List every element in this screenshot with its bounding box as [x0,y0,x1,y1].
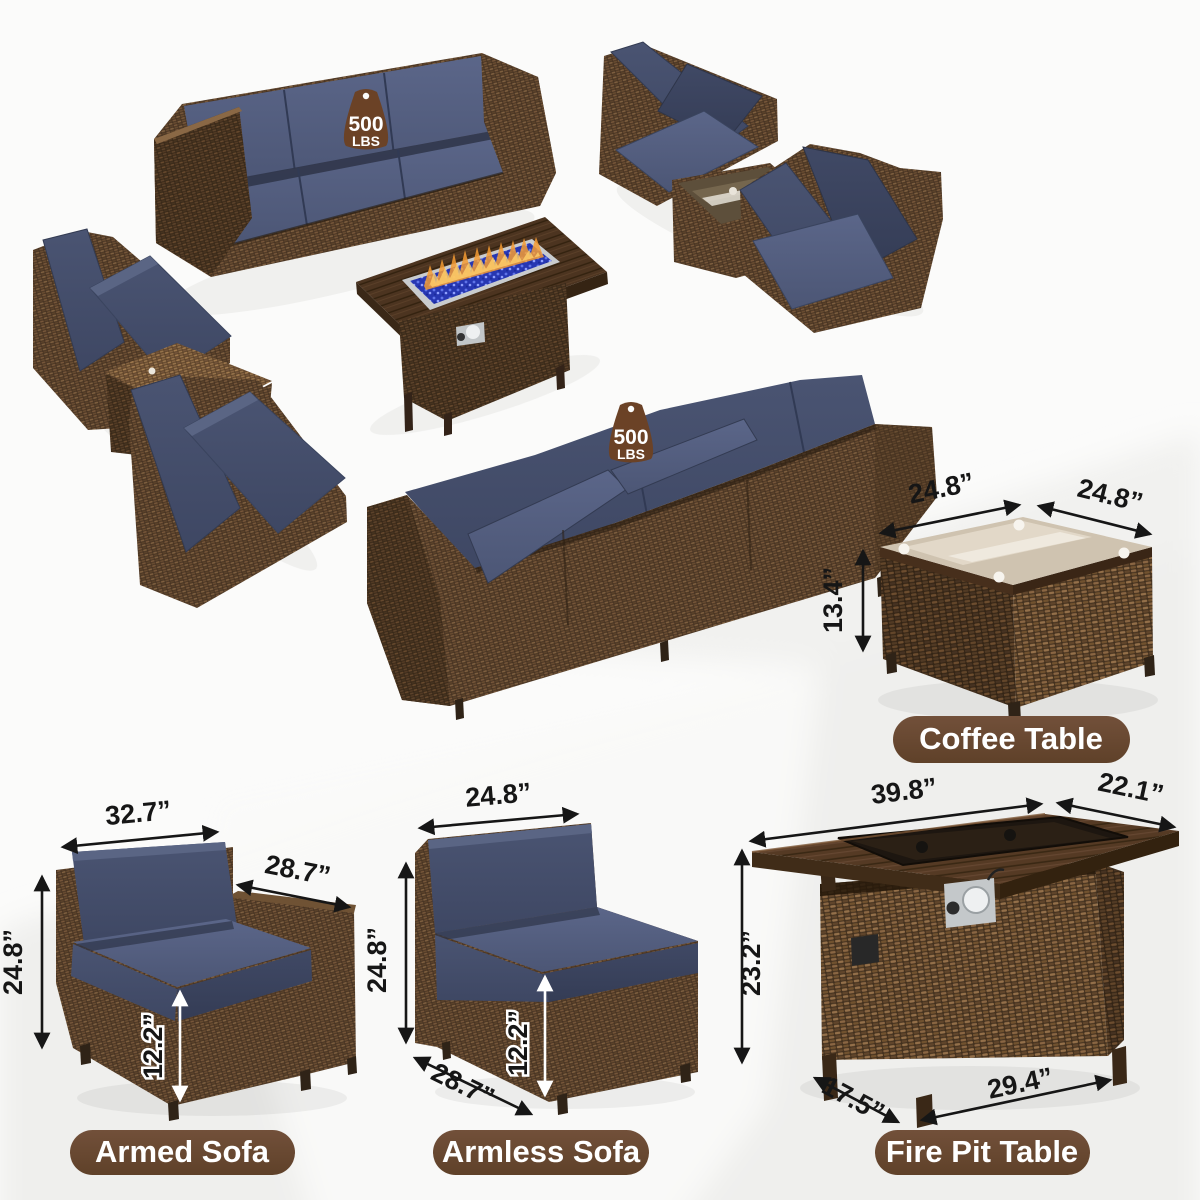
svg-text:Armed Sofa: Armed Sofa [95,1134,270,1169]
svg-text:24.8”: 24.8” [464,777,532,813]
svg-text:13.4”: 13.4” [818,567,848,633]
svg-text:LBS: LBS [352,133,380,149]
svg-text:23.2”: 23.2” [736,930,766,996]
svg-text:Coffee Table: Coffee Table [919,721,1103,756]
svg-text:12.2”: 12.2” [138,1013,168,1079]
svg-text:12.2”: 12.2” [503,1010,533,1076]
svg-text:Fire Pit Table: Fire Pit Table [886,1134,1078,1169]
svg-text:24.8”: 24.8” [362,927,392,993]
svg-text:32.7”: 32.7” [104,795,173,831]
svg-text:LBS: LBS [617,446,645,462]
svg-text:24.8”: 24.8” [0,929,28,995]
svg-text:Armless Sofa: Armless Sofa [442,1134,641,1169]
